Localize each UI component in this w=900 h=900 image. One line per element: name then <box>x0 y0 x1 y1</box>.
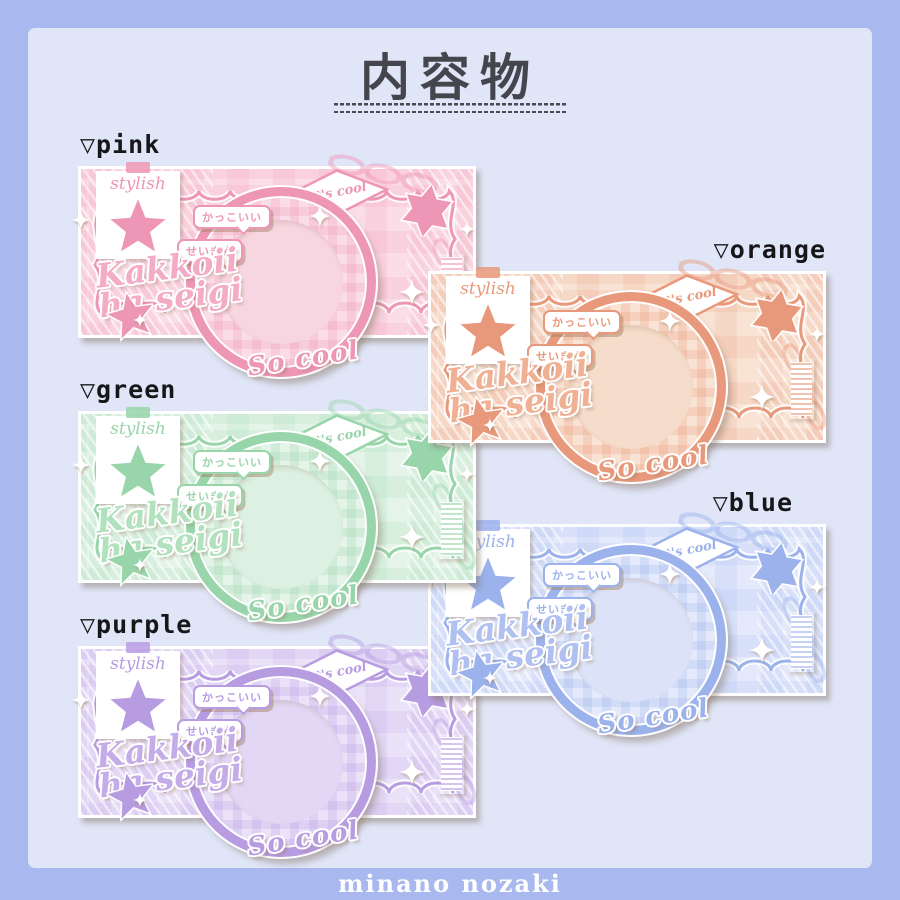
sparkle-icon <box>459 701 475 717</box>
sparkle-icon <box>459 221 475 237</box>
sparkle-icon <box>72 211 90 229</box>
circle-label: So cool <box>595 440 711 487</box>
tag-tab <box>126 642 150 653</box>
variant-grid: ▽pink It's cool So cool <box>0 0 900 900</box>
star-icon <box>453 645 510 702</box>
variant-label: ▽orange <box>714 235 826 264</box>
sparkle-icon <box>659 310 681 332</box>
speech-bubble-1: かっこいい <box>193 205 271 229</box>
variant-card-purple: ▽purple It's cool So cool <box>78 646 476 818</box>
variant-label: ▽pink <box>80 130 160 159</box>
sparkle-icon <box>399 759 425 785</box>
sparkle-icon <box>483 418 497 432</box>
sparkle-icon <box>309 685 331 707</box>
sparkle-icon <box>749 384 775 410</box>
sparkle-icon <box>422 316 440 334</box>
sparkle-icon <box>483 671 497 685</box>
circle-label: So cool <box>595 693 711 740</box>
tag-tab <box>126 407 150 418</box>
speech-bubble-1: かっこいい <box>543 310 621 334</box>
memo-paper <box>788 358 815 420</box>
sparkle-icon <box>399 524 425 550</box>
sparkle-icon <box>309 205 331 227</box>
speech-bubble-1: かっこいい <box>543 563 621 587</box>
sparkle-icon <box>309 450 331 472</box>
tag-label: stylish <box>446 279 530 299</box>
variant-label: ▽green <box>80 375 176 404</box>
stylish-tag: stylish <box>446 276 530 364</box>
sparkle-icon <box>133 313 147 327</box>
speech-bubble-1: かっこいい <box>193 450 271 474</box>
variant-card-blue: ▽blue It's cool So cool <box>428 524 826 696</box>
sparkle-icon <box>72 456 90 474</box>
star-icon <box>103 287 160 344</box>
circle-label: So cool <box>245 815 361 862</box>
speech-bubble-1: かっこいい <box>193 685 271 709</box>
design-card: It's cool So cool stylish かっこいい せいぎ☆ Kak… <box>78 411 476 583</box>
sparkle-icon <box>749 637 775 663</box>
variant-card-pink: ▽pink It's cool So cool <box>78 166 476 338</box>
circle-label: So cool <box>245 335 361 382</box>
sparkle-icon <box>72 691 90 709</box>
sparkle-icon <box>133 793 147 807</box>
star-icon <box>453 392 510 449</box>
memo-paper <box>438 733 465 795</box>
star-icon <box>109 197 167 255</box>
tag-tab <box>476 520 500 531</box>
design-card: It's cool So cool stylish かっこいい せいぎ☆ Kak… <box>428 524 826 696</box>
star-icon <box>109 442 167 500</box>
six-point-star-icon <box>397 181 457 241</box>
star-icon <box>103 767 160 824</box>
tag-tab <box>476 267 500 278</box>
sparkle-icon <box>809 326 825 342</box>
sparkle-icon <box>133 558 147 572</box>
stylish-tag: stylish <box>96 651 180 739</box>
tag-label: stylish <box>96 419 180 439</box>
sparkle-icon <box>659 563 681 585</box>
credit: minano nozaki <box>0 869 900 898</box>
star-icon <box>459 302 517 360</box>
sparkle-icon <box>399 279 425 305</box>
variant-card-green: ▽green It's cool So cool <box>78 411 476 583</box>
design-card: It's cool So cool stylish かっこいい せいぎ☆ Kak… <box>78 646 476 818</box>
six-point-star-icon <box>747 539 807 599</box>
circle-label: So cool <box>245 580 361 627</box>
design-card: It's cool So cool stylish かっこいい せいぎ☆ Kak… <box>428 271 826 443</box>
page: 内容物 ▽pink It's cool So cool <box>0 0 900 900</box>
variant-card-orange: ▽orange It's cool So cool <box>428 271 826 443</box>
memo-paper <box>788 611 815 673</box>
variant-label: ▽blue <box>713 488 793 517</box>
design-card: It's cool So cool stylish かっこいい せいぎ☆ Kak… <box>78 166 476 338</box>
sparkle-icon <box>459 466 475 482</box>
tag-label: stylish <box>96 654 180 674</box>
stylish-tag: stylish <box>96 171 180 259</box>
sparkle-icon <box>809 579 825 595</box>
tag-label: stylish <box>96 174 180 194</box>
six-point-star-icon <box>747 286 807 346</box>
variant-label: ▽purple <box>80 610 192 639</box>
stylish-tag: stylish <box>96 416 180 504</box>
star-icon <box>109 677 167 735</box>
star-icon <box>103 532 160 589</box>
tag-tab <box>126 162 150 173</box>
memo-paper <box>438 498 465 560</box>
